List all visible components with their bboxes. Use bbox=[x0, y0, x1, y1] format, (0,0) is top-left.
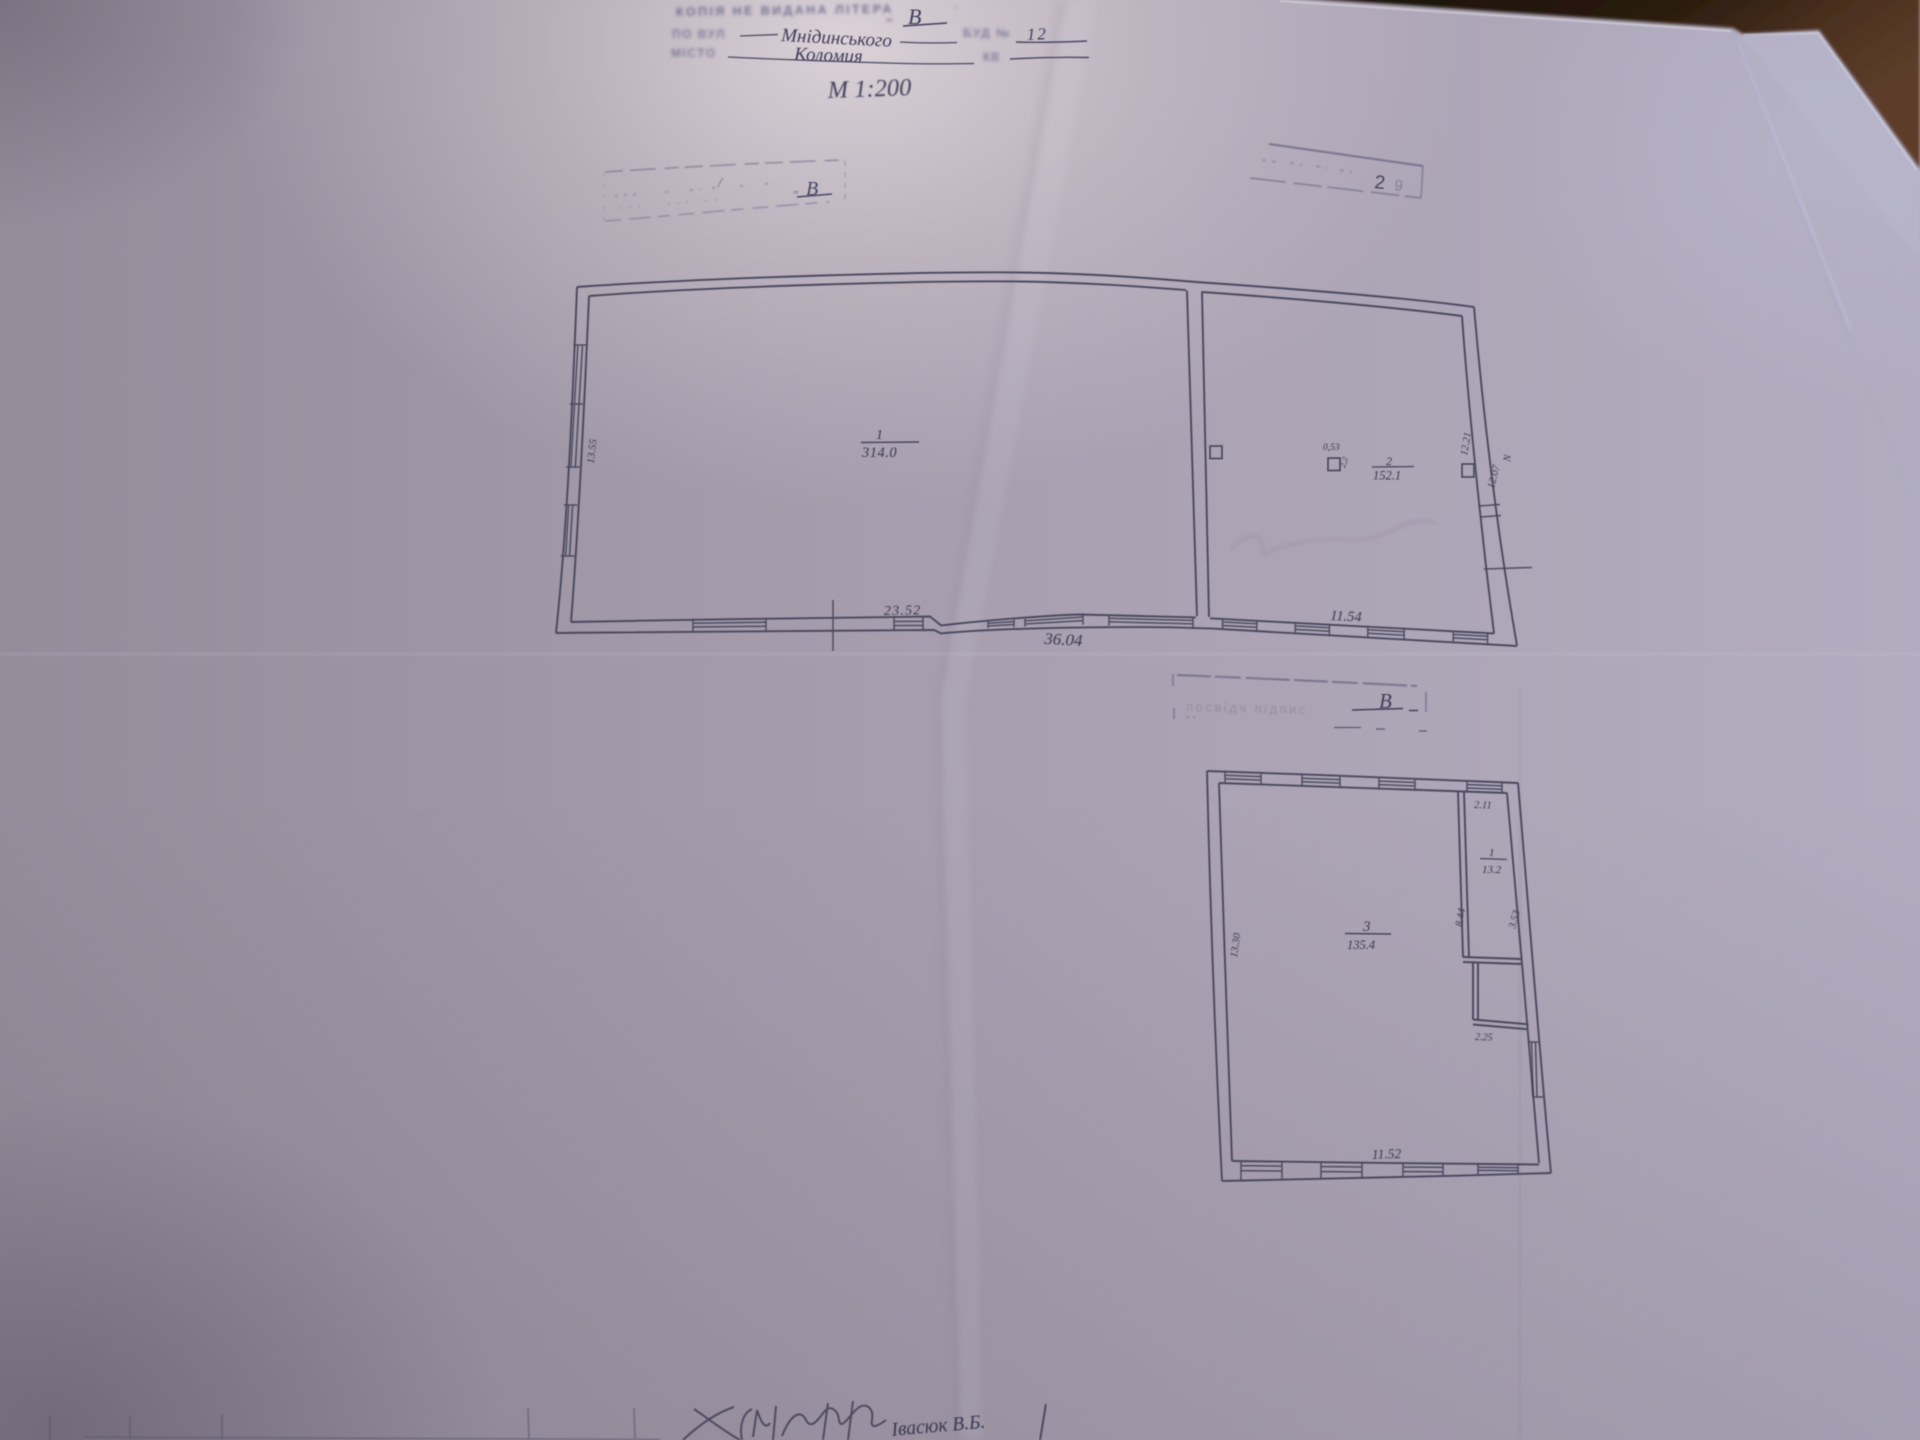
svg-text:314.0: 314.0 bbox=[861, 445, 897, 461]
svg-text:КВ: КВ bbox=[983, 52, 1000, 64]
svg-text:0,53: 0,53 bbox=[1323, 443, 1340, 453]
svg-text:2: 2 bbox=[1386, 454, 1392, 468]
svg-text:„: „ bbox=[793, 181, 798, 195]
svg-text:3: 3 bbox=[1362, 919, 1371, 935]
svg-text:2.11: 2.11 bbox=[1474, 800, 1492, 812]
svg-text:135.4: 135.4 bbox=[1347, 938, 1375, 952]
svg-text:М 1:200: М 1:200 bbox=[826, 74, 912, 104]
svg-text:БУД №: БУД № bbox=[963, 26, 1011, 40]
svg-text:2: 2 bbox=[1373, 172, 1386, 194]
svg-text:12: 12 bbox=[1026, 24, 1048, 44]
svg-text:13.2: 13.2 bbox=[1482, 864, 1502, 876]
svg-text:2.25: 2.25 bbox=[1475, 1032, 1493, 1044]
svg-text:': ' bbox=[955, 4, 957, 16]
svg-text:36.04: 36.04 bbox=[1043, 629, 1084, 650]
svg-text:11.52: 11.52 bbox=[1372, 1146, 1402, 1162]
svg-text:посвідч підпис: посвідч підпис bbox=[1186, 699, 1308, 717]
svg-text:23.52: 23.52 bbox=[884, 603, 922, 619]
svg-text:МІСТО: МІСТО bbox=[671, 46, 717, 60]
svg-text:9: 9 bbox=[1394, 177, 1404, 195]
svg-text:ПО ВУЛ: ПО ВУЛ bbox=[672, 27, 726, 41]
svg-text:„: „ bbox=[886, 8, 893, 24]
svg-text:1: 1 bbox=[876, 428, 883, 443]
svg-text:1: 1 bbox=[1489, 847, 1495, 859]
svg-text:152.1: 152.1 bbox=[1373, 469, 1401, 483]
svg-text:Коломия: Коломия bbox=[793, 44, 863, 67]
svg-text:11.54: 11.54 bbox=[1330, 608, 1362, 626]
